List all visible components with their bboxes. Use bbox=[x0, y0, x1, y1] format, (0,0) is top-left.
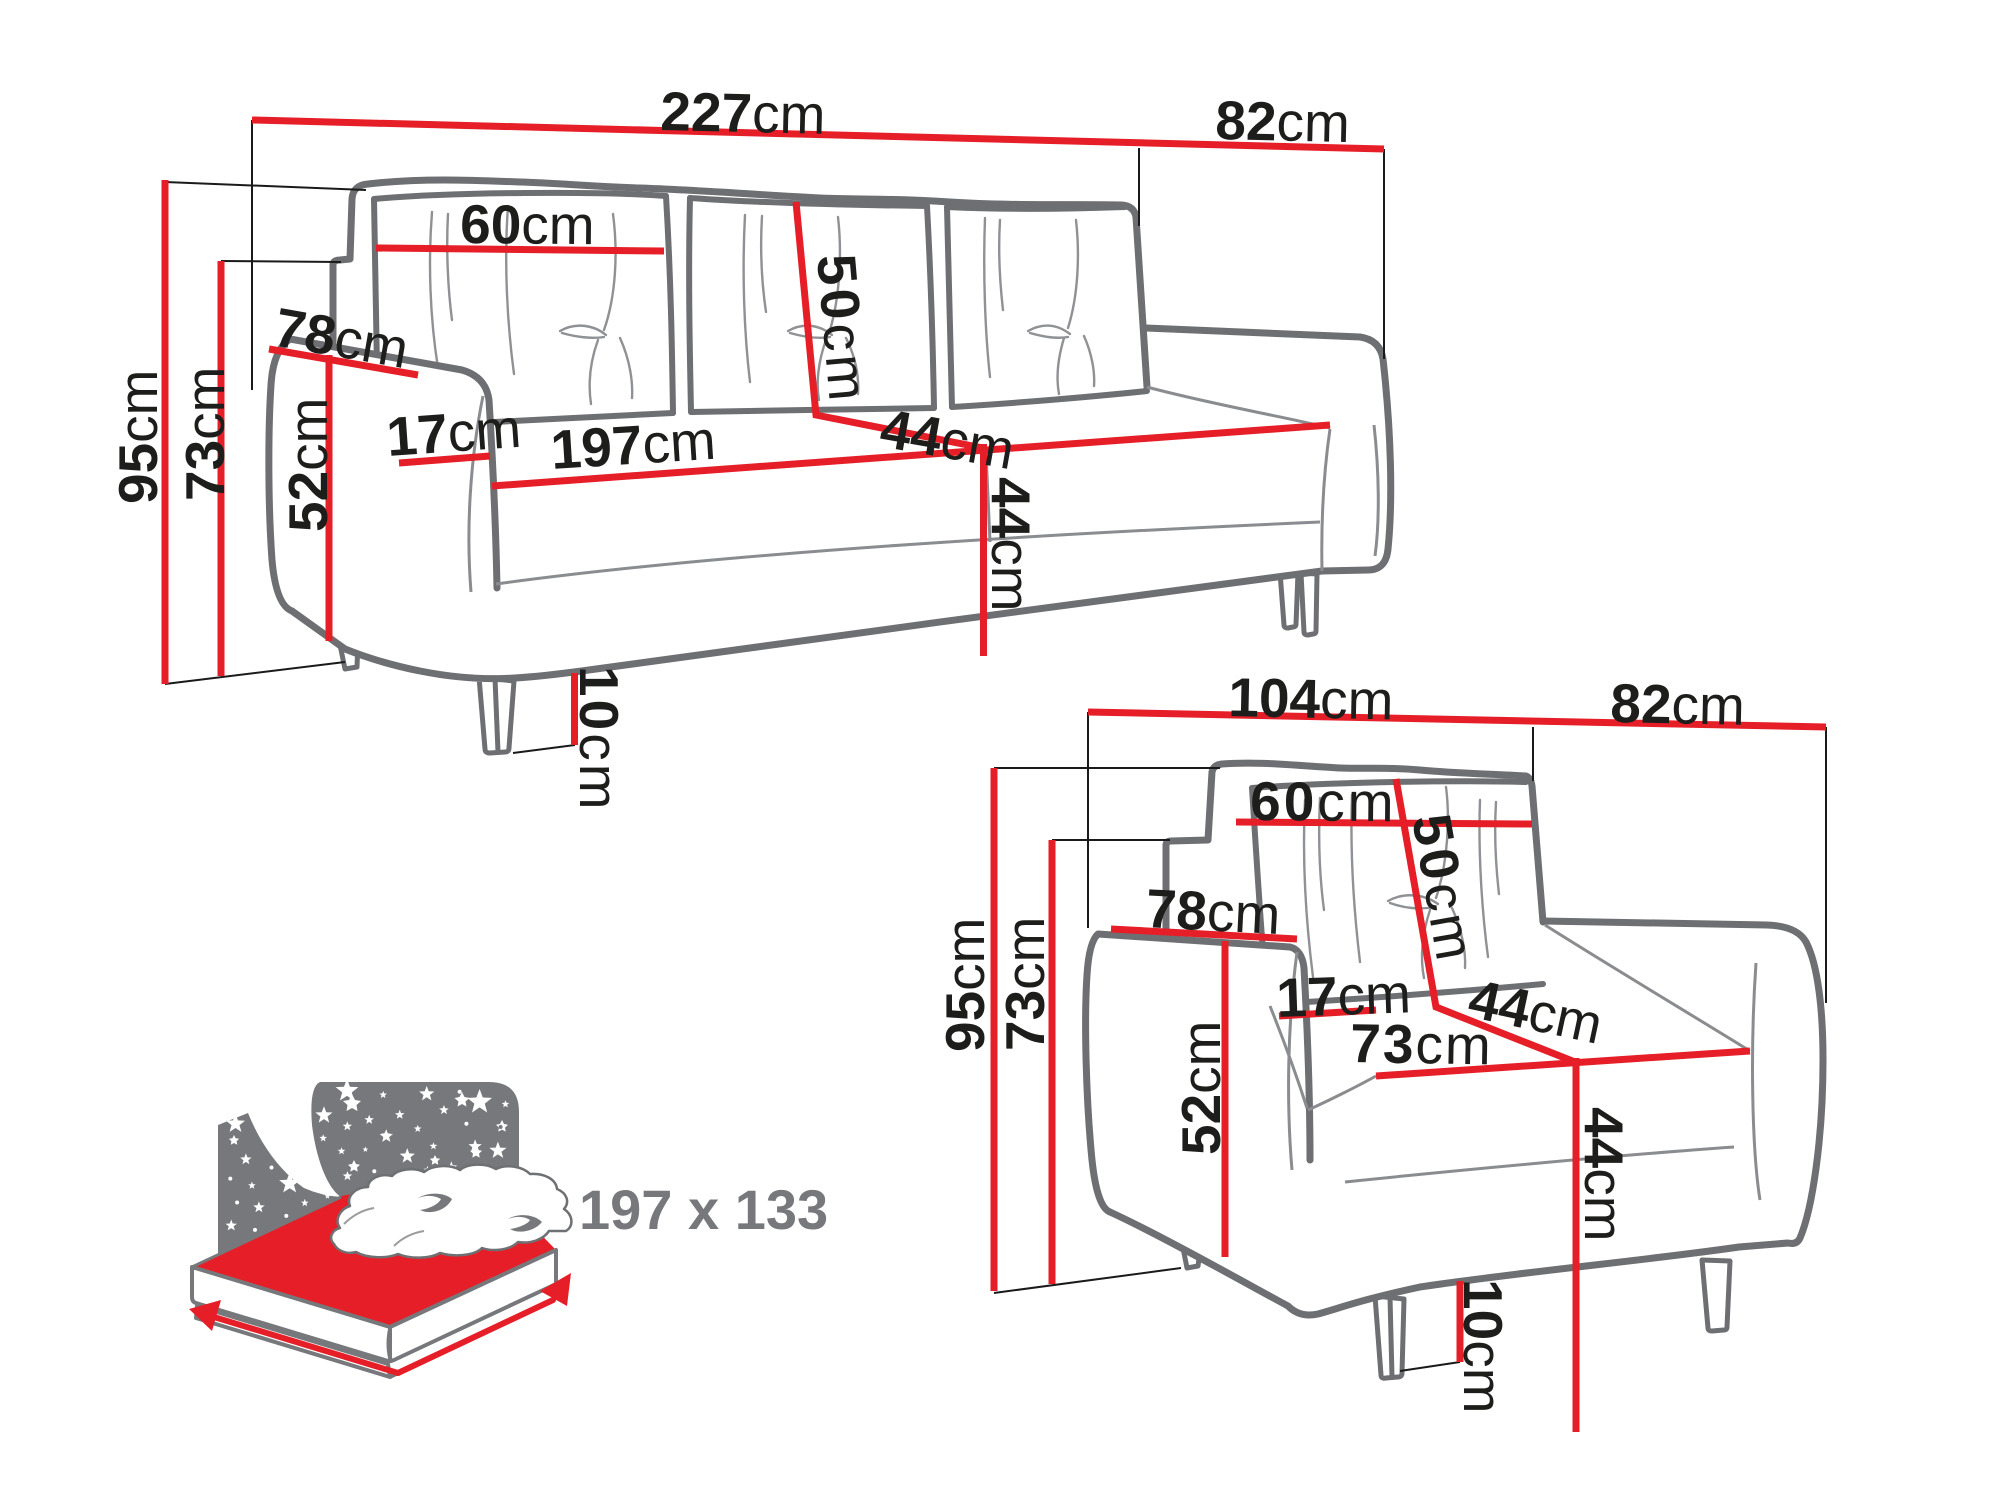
svg-text:44cm: 44cm bbox=[980, 477, 1042, 612]
svg-text:73cm: 73cm bbox=[174, 366, 236, 501]
svg-text:197 x 133: 197 x 133 bbox=[579, 1178, 828, 1241]
svg-text:44cm: 44cm bbox=[1573, 1107, 1635, 1242]
svg-text:104cm: 104cm bbox=[1228, 666, 1394, 731]
svg-text:10cm: 10cm bbox=[568, 666, 630, 813]
svg-text:227cm: 227cm bbox=[660, 80, 826, 146]
svg-text:78cm: 78cm bbox=[1144, 877, 1282, 946]
svg-text:17cm: 17cm bbox=[1275, 962, 1412, 1029]
svg-text:73cm: 73cm bbox=[994, 916, 1056, 1051]
svg-text:52cm: 52cm bbox=[277, 397, 339, 532]
svg-text:50cm: 50cm bbox=[805, 252, 880, 407]
svg-text:60cm: 60cm bbox=[460, 193, 595, 256]
svg-text:95cm: 95cm bbox=[107, 369, 169, 504]
svg-text:17cm: 17cm bbox=[385, 397, 524, 468]
svg-text:10cm: 10cm bbox=[1452, 1279, 1514, 1414]
svg-text:197cm: 197cm bbox=[549, 409, 718, 481]
svg-text:52cm: 52cm bbox=[1170, 1020, 1232, 1155]
svg-text:95cm: 95cm bbox=[934, 917, 996, 1052]
svg-text:82cm: 82cm bbox=[1610, 672, 1746, 737]
svg-text:82cm: 82cm bbox=[1215, 89, 1351, 154]
svg-text:60cm: 60cm bbox=[1250, 770, 1397, 833]
